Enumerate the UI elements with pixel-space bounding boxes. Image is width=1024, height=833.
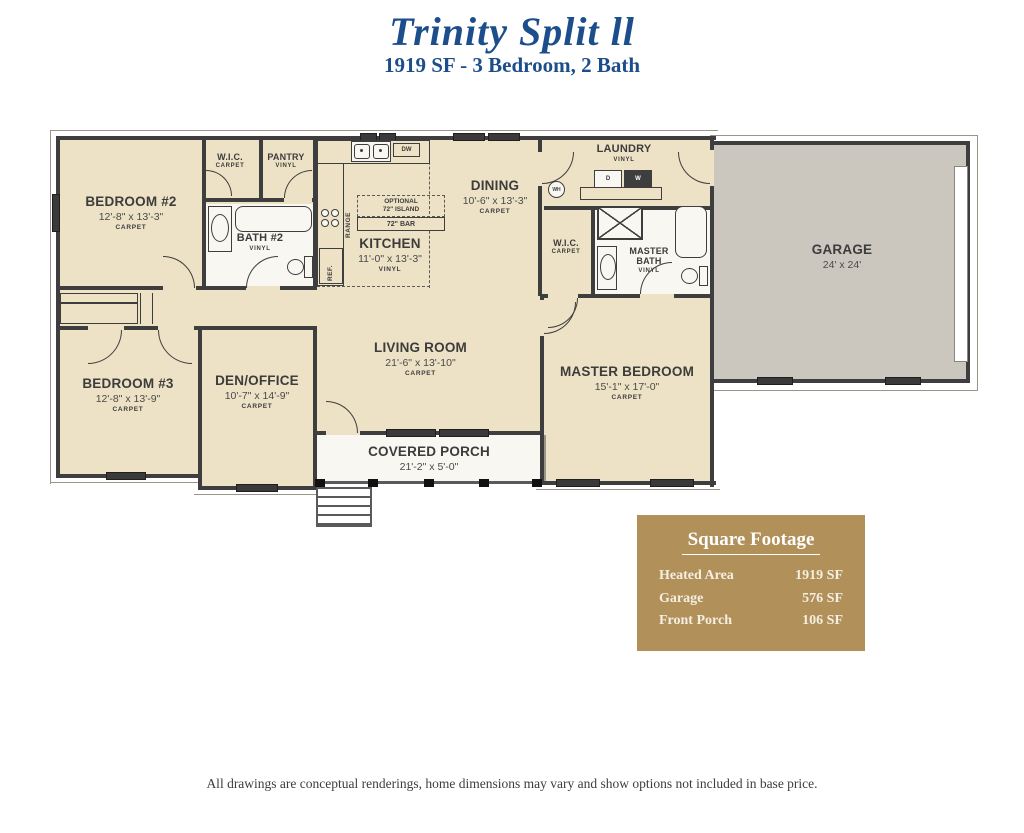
window-den-office [236, 484, 278, 492]
closet-divider [140, 293, 153, 324]
room-label-bath2: BATH #2 VINYL [216, 232, 304, 253]
square-footage-row: Front Porch 106 SF [637, 610, 865, 633]
burner [331, 219, 339, 227]
master-sink [600, 254, 616, 280]
kitchen-dashed-boundary [317, 286, 430, 287]
room-name: DEN/OFFICE [201, 373, 313, 389]
dryer: D [594, 170, 622, 188]
window-living-room-1 [386, 429, 436, 437]
square-footage-row: Heated Area 1919 SF [637, 565, 865, 588]
master-shower [597, 206, 643, 240]
water-heater: WH [548, 181, 565, 198]
water-heater-label: WH [552, 187, 560, 193]
room-dims: 11'-0" x 13'-3" [345, 253, 435, 265]
window-bedroom2 [52, 194, 60, 232]
wall-segment [710, 136, 714, 487]
sink-basin [373, 144, 389, 159]
sf-row-label: Garage [659, 588, 703, 611]
page-title: Trinity Split ll [0, 8, 1024, 55]
room-name: COVERED PORCH [330, 444, 528, 460]
room-name: MASTER BEDROOM [542, 364, 712, 380]
porch-post [315, 479, 325, 487]
window-garage-2 [885, 377, 921, 385]
refrigerator-label: REF. [327, 253, 334, 281]
square-footage-panel: Square Footage Heated Area 1919 SF Garag… [637, 515, 865, 651]
room-label-living-room: LIVING ROOM 21'-6" x 13'-10" CARPET [348, 340, 493, 377]
room-label-bedroom2: BEDROOM #2 12'-8" x 13'-3" CARPET [61, 194, 201, 231]
dishwasher: DW [393, 143, 420, 157]
kitchen-sink [351, 141, 391, 162]
laundry-platform [580, 187, 662, 200]
bath2-toilet [287, 259, 304, 275]
room-name: BEDROOM #3 [58, 376, 198, 392]
room-label-bedroom3: BEDROOM #3 12'-8" x 13'-9" CARPET [58, 376, 198, 413]
room-name: MASTER BATH [617, 246, 681, 267]
door-gap [640, 294, 674, 298]
wall-segment [313, 326, 317, 490]
sf-row-value: 1919 SF [795, 565, 843, 588]
room-floor: VINYL [345, 266, 435, 273]
room-floor: CARPET [348, 370, 493, 377]
closet-shelf-line [61, 302, 137, 304]
room-name: KITCHEN [345, 236, 435, 252]
disclaimer-text: All drawings are conceptual renderings, … [0, 776, 1024, 792]
square-footage-title: Square Footage [682, 529, 821, 555]
burner [321, 209, 329, 217]
room-label-wic2: W.I.C. CARPET [202, 152, 258, 170]
sf-row-label: Heated Area [659, 565, 734, 588]
room-label-master-bath: MASTER BATH VINYL [617, 246, 681, 275]
room-dims: 21'-6" x 13'-10" [348, 357, 493, 369]
door-gap [284, 198, 312, 202]
porch-steps [316, 487, 372, 527]
washer: W [624, 170, 652, 188]
burner [321, 219, 329, 227]
window-dining-1 [453, 133, 485, 141]
room-floor: VINYL [566, 157, 682, 164]
room-dims: 12'-8" x 13'-9" [58, 393, 198, 405]
bar-label: 72" BAR [387, 221, 415, 228]
eave-line [536, 489, 720, 490]
porch-post [368, 479, 378, 487]
room-name: PANTRY [259, 152, 313, 162]
range-label: RANGE [345, 198, 352, 238]
eave-line [50, 130, 718, 131]
room-floor: CARPET [58, 406, 198, 413]
eave-line [50, 130, 51, 484]
room-name: LAUNDRY [566, 143, 682, 156]
room-name: DINING [440, 178, 550, 194]
room-name: BATH #2 [216, 232, 304, 245]
room-floor: VINYL [259, 163, 313, 170]
room-dims: 10'-6" x 13'-3" [440, 195, 550, 207]
window-master-bedroom-2 [650, 479, 694, 487]
wall-segment [714, 379, 970, 383]
range-burners [319, 200, 341, 236]
window-master-bedroom-1 [556, 479, 600, 487]
room-dims: 15'-1" x 17'-0" [542, 381, 712, 393]
room-label-master-bedroom: MASTER BEDROOM 15'-1" x 17'-0" CARPET [542, 364, 712, 401]
room-floor: CARPET [538, 249, 594, 256]
window-garage-1 [757, 377, 793, 385]
sf-row-label: Front Porch [659, 610, 732, 633]
room-dims: 10'-7" x 14'-9" [201, 390, 313, 402]
window-dining-2 [488, 133, 520, 141]
island-label-line1: OPTIONAL [358, 198, 444, 206]
room-label-kitchen: KITCHEN 11'-0" x 13'-3" VINYL [345, 236, 435, 273]
eave-line [710, 135, 978, 136]
room-name: LIVING ROOM [348, 340, 493, 356]
room-label-garage: GARAGE 24' x 24' [714, 242, 970, 271]
porch-post [424, 479, 434, 487]
room-dims: 12'-8" x 13'-3" [61, 211, 201, 223]
room-label-den-office: DEN/OFFICE 10'-7" x 14'-9" CARPET [201, 373, 313, 410]
room-floor: CARPET [542, 394, 712, 401]
door-gap [710, 150, 714, 186]
bath2-tub [235, 206, 312, 232]
square-footage-row: Garage 576 SF [637, 588, 865, 611]
dishwasher-label: DW [402, 147, 412, 153]
room-dims: 21'-2" x 5'-0" [330, 461, 528, 473]
room-name: GARAGE [714, 242, 970, 258]
page-subtitle: 1919 SF - 3 Bedroom, 2 Bath [0, 53, 1024, 78]
room-floor: CARPET [61, 224, 201, 231]
porch-post [479, 479, 489, 487]
room-name: BEDROOM #2 [61, 194, 201, 210]
room-label-pantry: PANTRY VINYL [259, 152, 313, 170]
eave-line [50, 482, 206, 483]
bath2-toilet-tank [304, 256, 313, 278]
island-label-line2: 72" ISLAND [358, 206, 444, 214]
room-label-laundry: LAUNDRY VINYL [566, 143, 682, 164]
room-floor: CARPET [440, 208, 550, 215]
optional-island: OPTIONAL 72" ISLAND [357, 195, 445, 217]
dryer-label: D [606, 176, 610, 182]
room-label-dining: DINING 10'-6" x 13'-3" CARPET [440, 178, 550, 215]
room-floor: CARPET [202, 163, 258, 170]
wall-segment [714, 141, 970, 145]
eave-line [194, 494, 321, 495]
master-toilet-tank [699, 266, 708, 286]
master-toilet [681, 268, 698, 284]
room-floor: VINYL [216, 246, 304, 253]
eave-line [710, 390, 978, 391]
eave-line [977, 135, 978, 391]
burner [331, 209, 339, 217]
window-bedroom3 [106, 472, 146, 480]
washer-label: W [635, 176, 641, 182]
sf-row-value: 106 SF [802, 610, 843, 633]
porch-post [532, 479, 542, 487]
sf-row-value: 576 SF [802, 588, 843, 611]
kitchen-bar: 72" BAR [357, 217, 445, 231]
room-name: W.I.C. [538, 238, 594, 248]
window-living-room-2 [439, 429, 489, 437]
room-label-covered-porch: COVERED PORCH 21'-2" x 5'-0" [330, 444, 528, 473]
sink-basin [354, 144, 370, 159]
room-floor: CARPET [201, 403, 313, 410]
refrigerator: REF. [319, 248, 343, 284]
linen-closet [60, 293, 138, 324]
room-dims: 24' x 24' [714, 259, 970, 271]
room-name: W.I.C. [202, 152, 258, 162]
room-label-wic-master: W.I.C. CARPET [538, 238, 594, 256]
room-floor: VINYL [617, 268, 681, 275]
